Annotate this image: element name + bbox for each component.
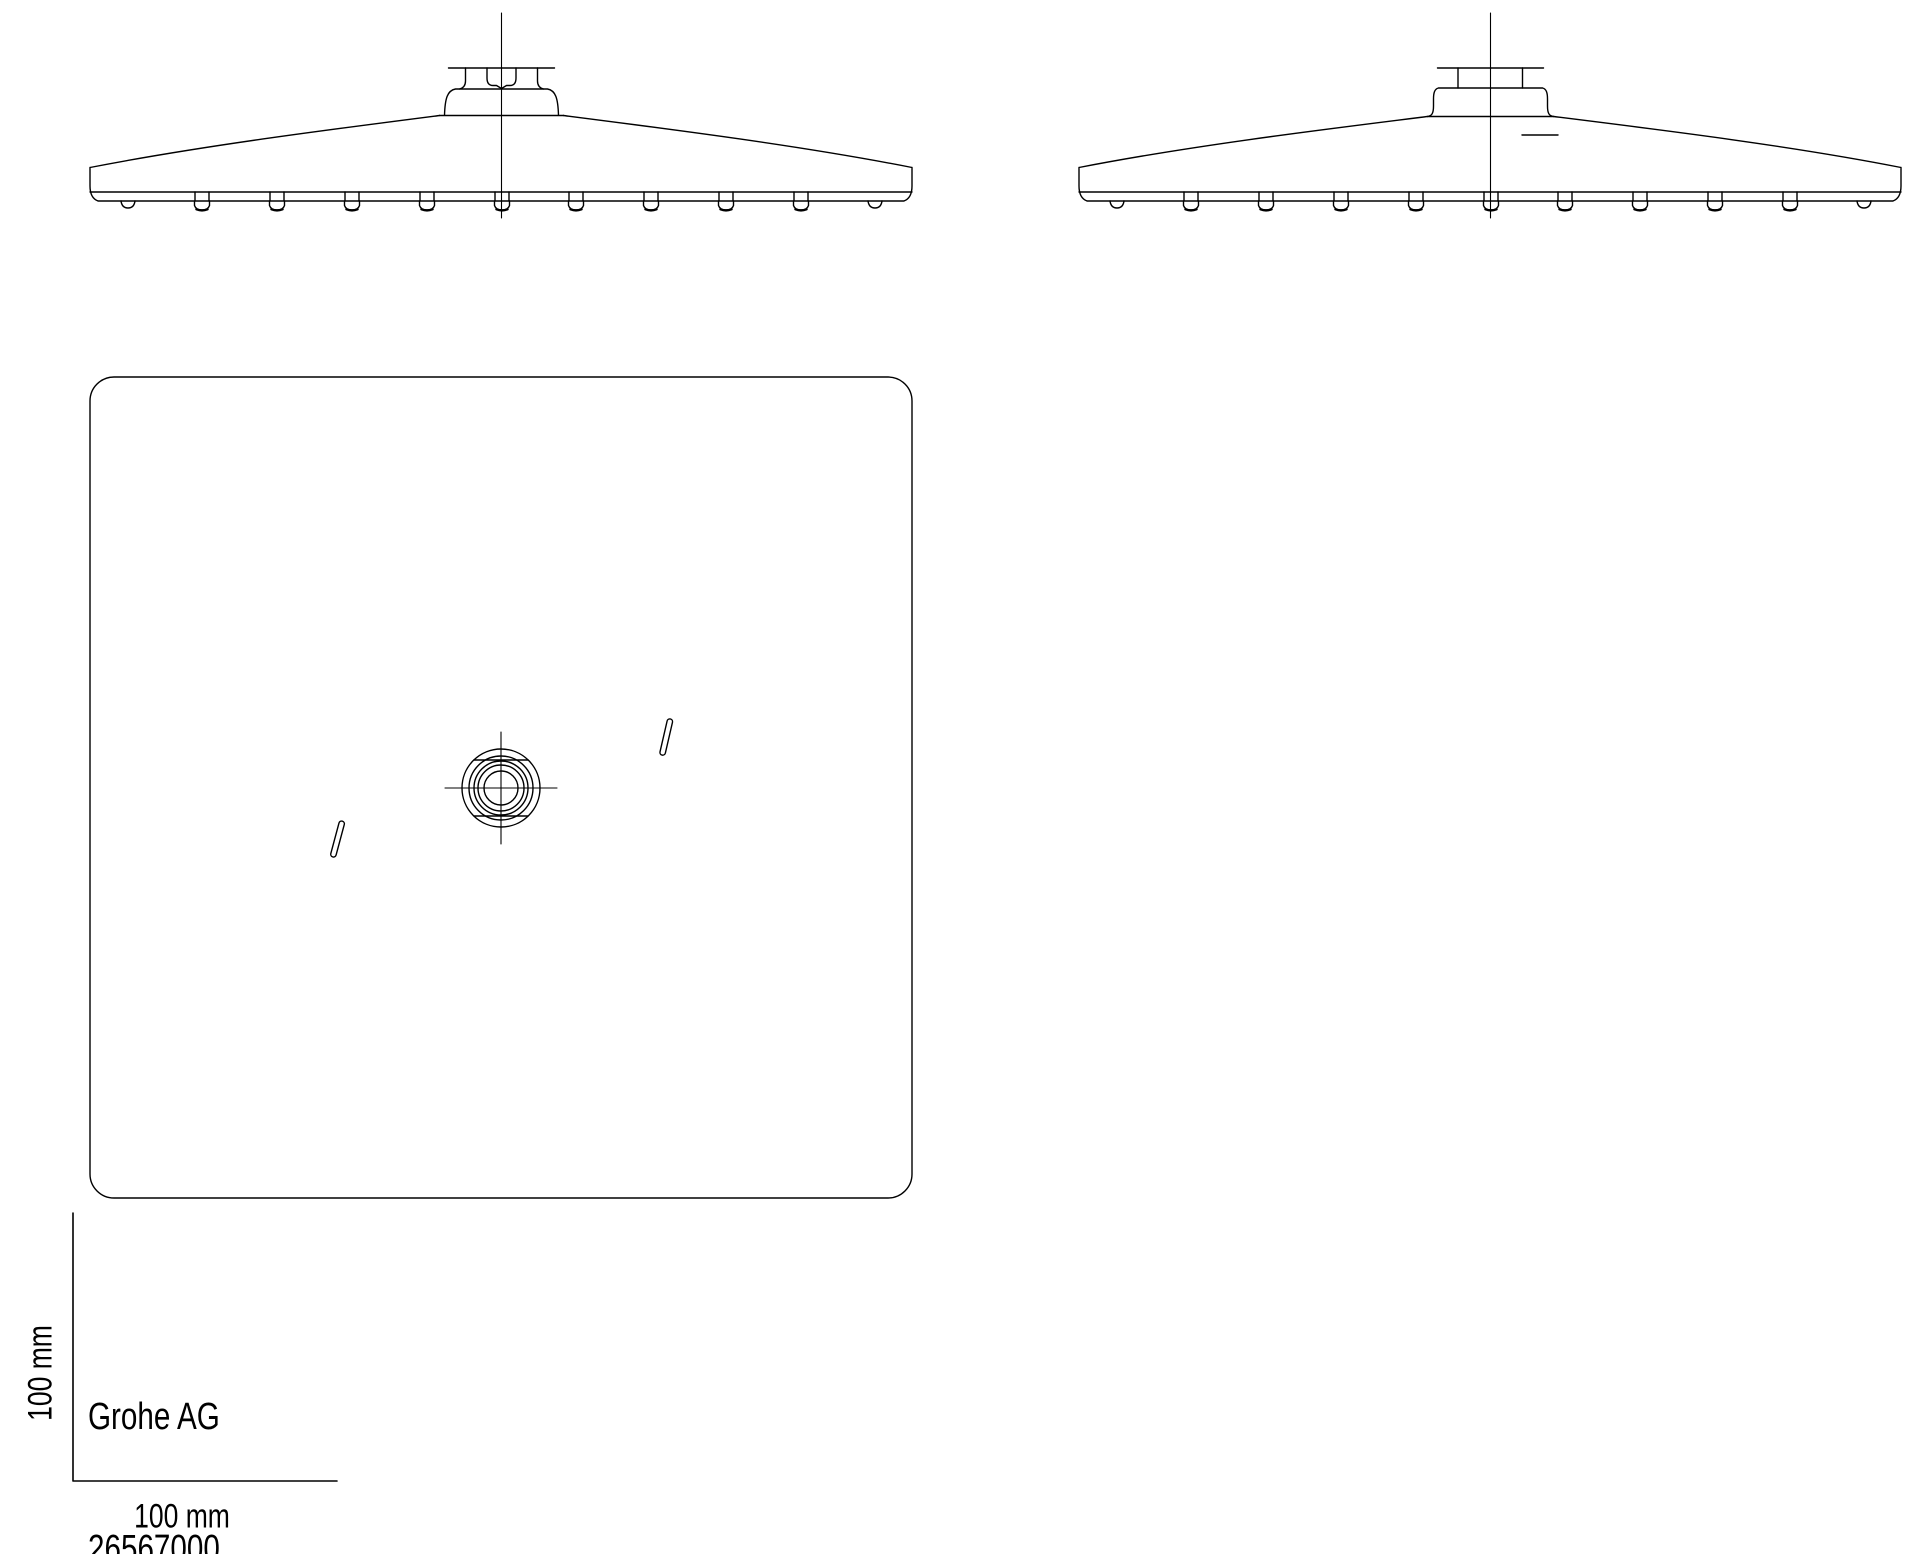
technical-drawing-canvas — [0, 0, 1920, 1554]
manufacturer-label: Grohe AG — [88, 1395, 243, 1439]
side-elevation-view — [1079, 13, 1901, 218]
front-elevation-view — [90, 13, 912, 218]
nozzle-tips — [197, 209, 807, 210]
technical-drawing-page: Grohe AG 26567000 ecn:242390 unit: mm 10… — [0, 0, 1920, 1554]
scale-x-label: 100 mm — [134, 1498, 230, 1537]
nozzle-tips — [1186, 209, 1796, 210]
plan-view — [90, 377, 912, 1198]
scale-y-label: 100 mm — [22, 1325, 61, 1421]
spray-slot-left — [330, 820, 345, 857]
spray-slot-right — [659, 718, 673, 755]
